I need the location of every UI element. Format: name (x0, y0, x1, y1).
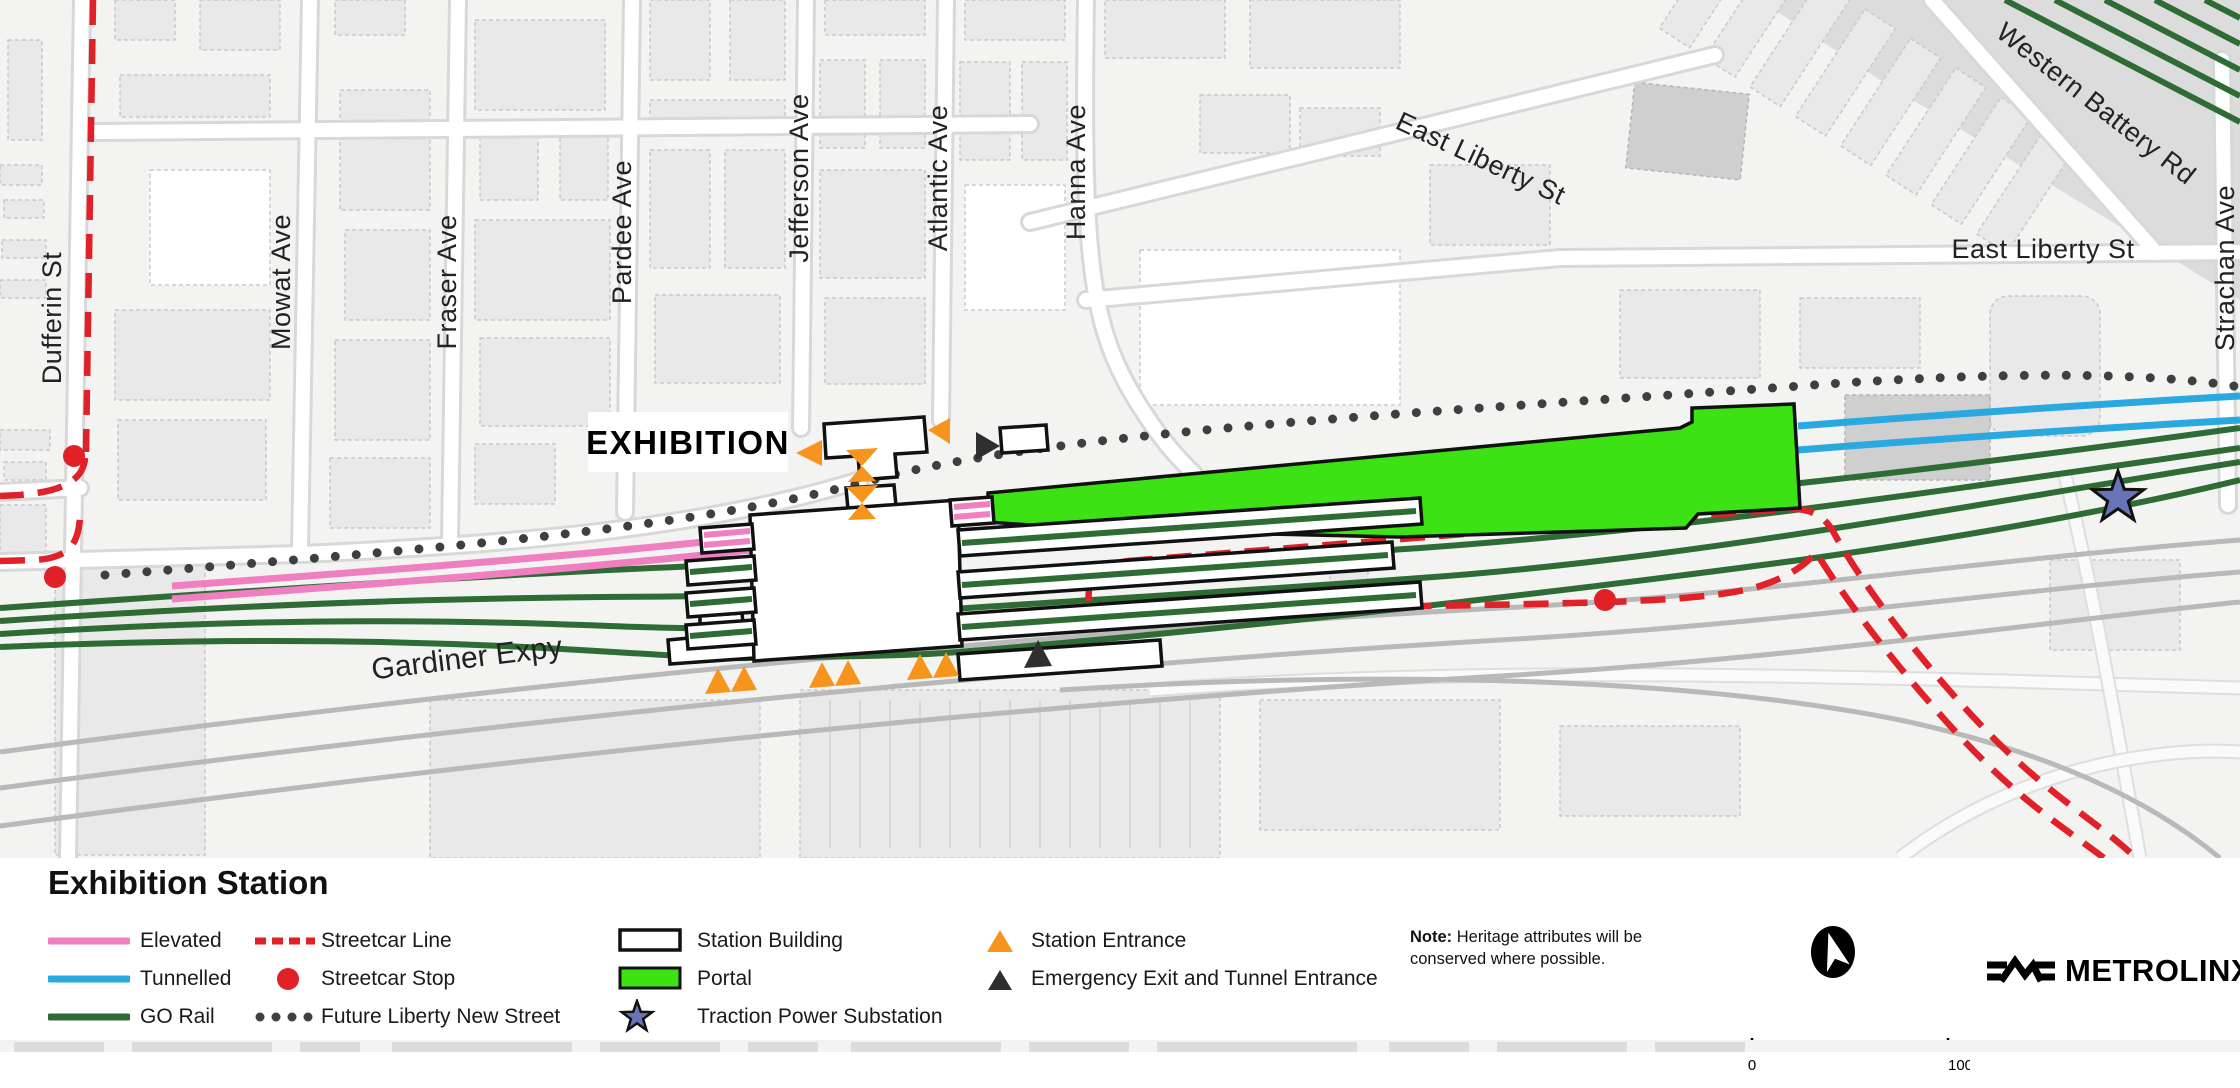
station-building-icon (617, 927, 697, 955)
portal-icon (617, 965, 697, 993)
streetcar-stop-icon (255, 967, 321, 991)
note-label: Note: (1410, 928, 1452, 946)
street-label-east-liberty-east: East Liberty St (1951, 234, 2134, 264)
station-name-text: EXHIBITION (586, 424, 790, 461)
heritage-note: Note: Heritage attributes will be conser… (1410, 926, 1660, 971)
streetcar-line-icon (255, 936, 321, 946)
emergency-exit-icon (985, 966, 1031, 992)
street-label-jefferson: Jefferson Ave (784, 93, 814, 262)
legend-item-label: Emergency Exit and Tunnel Entrance (1031, 967, 1378, 991)
legend-item-label: Portal (697, 967, 752, 991)
station-building-main-hall (750, 500, 962, 661)
street-label-pardee: Pardee Ave (607, 160, 637, 304)
legend-item-label: Station Building (697, 929, 843, 953)
legend-item-streetcar-line: Streetcar Line (255, 922, 560, 960)
metrolinx-logo: METROLINX (1985, 953, 2240, 989)
scale-start-label: 0 (1748, 1057, 1756, 1074)
legend-item-station-entrance: Station Entrance (985, 922, 1378, 960)
legend-item-tunnelled: Tunnelled (48, 960, 231, 998)
tunnelled-line-icon (48, 974, 140, 984)
legend-item-future-street: Future Liberty New Street (255, 998, 560, 1036)
legend-item-emergency-exit: Emergency Exit and Tunnel Entrance (985, 960, 1378, 998)
legend-item-label: Tunnelled (140, 967, 231, 991)
street-label-strachan: Strachan Ave (2210, 185, 2240, 351)
legend-column-streetcar: Streetcar Line Streetcar Stop Future Lib… (255, 922, 560, 1036)
go-rail-line-icon (48, 1012, 140, 1022)
legend-item-label: Traction Power Substation (697, 1005, 943, 1029)
future-street-dotted-icon (255, 1012, 321, 1022)
substation-star-icon (617, 999, 697, 1035)
street-label-atlantic: Atlantic Ave (923, 105, 953, 252)
legend-item-label: GO Rail (140, 1005, 215, 1029)
legend-title: Exhibition Station (48, 864, 328, 902)
legend-panel: Exhibition Station Elevated Tunnelled GO… (0, 858, 2240, 1040)
streetcar-stop-dufferin-south (44, 566, 66, 588)
metrolinx-wordmark: METROLINX (2065, 953, 2240, 989)
legend-item-go-rail: GO Rail (48, 998, 231, 1036)
legend-item-substation: Traction Power Substation (617, 998, 943, 1036)
streetcar-stop-exhibition-loop (1594, 589, 1616, 611)
street-label-hanna: Hanna Ave (1061, 104, 1091, 240)
scale-end-label: 100 metres (1948, 1057, 1970, 1074)
streetcar-stop-dufferin-north (63, 445, 85, 467)
street-label-dufferin: Dufferin St (37, 252, 67, 385)
legend-column-entrances: Station Entrance Emergency Exit and Tunn… (985, 922, 1378, 998)
station-entrance-icon (985, 928, 1031, 954)
street-label-mowat: Mowat Ave (266, 214, 296, 350)
legend-item-elevated: Elevated (48, 922, 231, 960)
legend-item-portal: Portal (617, 960, 943, 998)
legend-item-label: Future Liberty New Street (321, 1005, 560, 1029)
legend-item-label: Elevated (140, 929, 222, 953)
station-building-northeast (1000, 425, 1048, 453)
striped-hall (800, 690, 1220, 858)
legend-item-streetcar-stop: Streetcar Stop (255, 960, 560, 998)
north-arrow-icon (1811, 926, 1855, 978)
legend-item-label: Station Entrance (1031, 929, 1186, 953)
street-label-fraser: Fraser Ave (432, 214, 462, 349)
legend-column-structures: Station Building Portal Traction Power S… (617, 922, 943, 1036)
legend-column-lines: Elevated Tunnelled GO Rail (48, 922, 231, 1036)
legend-item-label: Streetcar Stop (321, 967, 455, 991)
map-canvas: EXHIBITION Dufferin St Mowat Ave Fraser … (0, 0, 2240, 860)
bottom-map-sliver (0, 1040, 2240, 1052)
metrolinx-mark-icon (1985, 953, 2057, 989)
elevated-line-icon (48, 936, 140, 946)
map-svg: EXHIBITION Dufferin St Mowat Ave Fraser … (0, 0, 2240, 860)
legend-item-station-building: Station Building (617, 922, 943, 960)
exhibition-station-map-page: EXHIBITION Dufferin St Mowat Ave Fraser … (0, 0, 2240, 1052)
north-and-scale: 0 100 metres (1730, 918, 1970, 1088)
legend-item-label: Streetcar Line (321, 929, 452, 953)
station-name-label: EXHIBITION (586, 412, 790, 472)
